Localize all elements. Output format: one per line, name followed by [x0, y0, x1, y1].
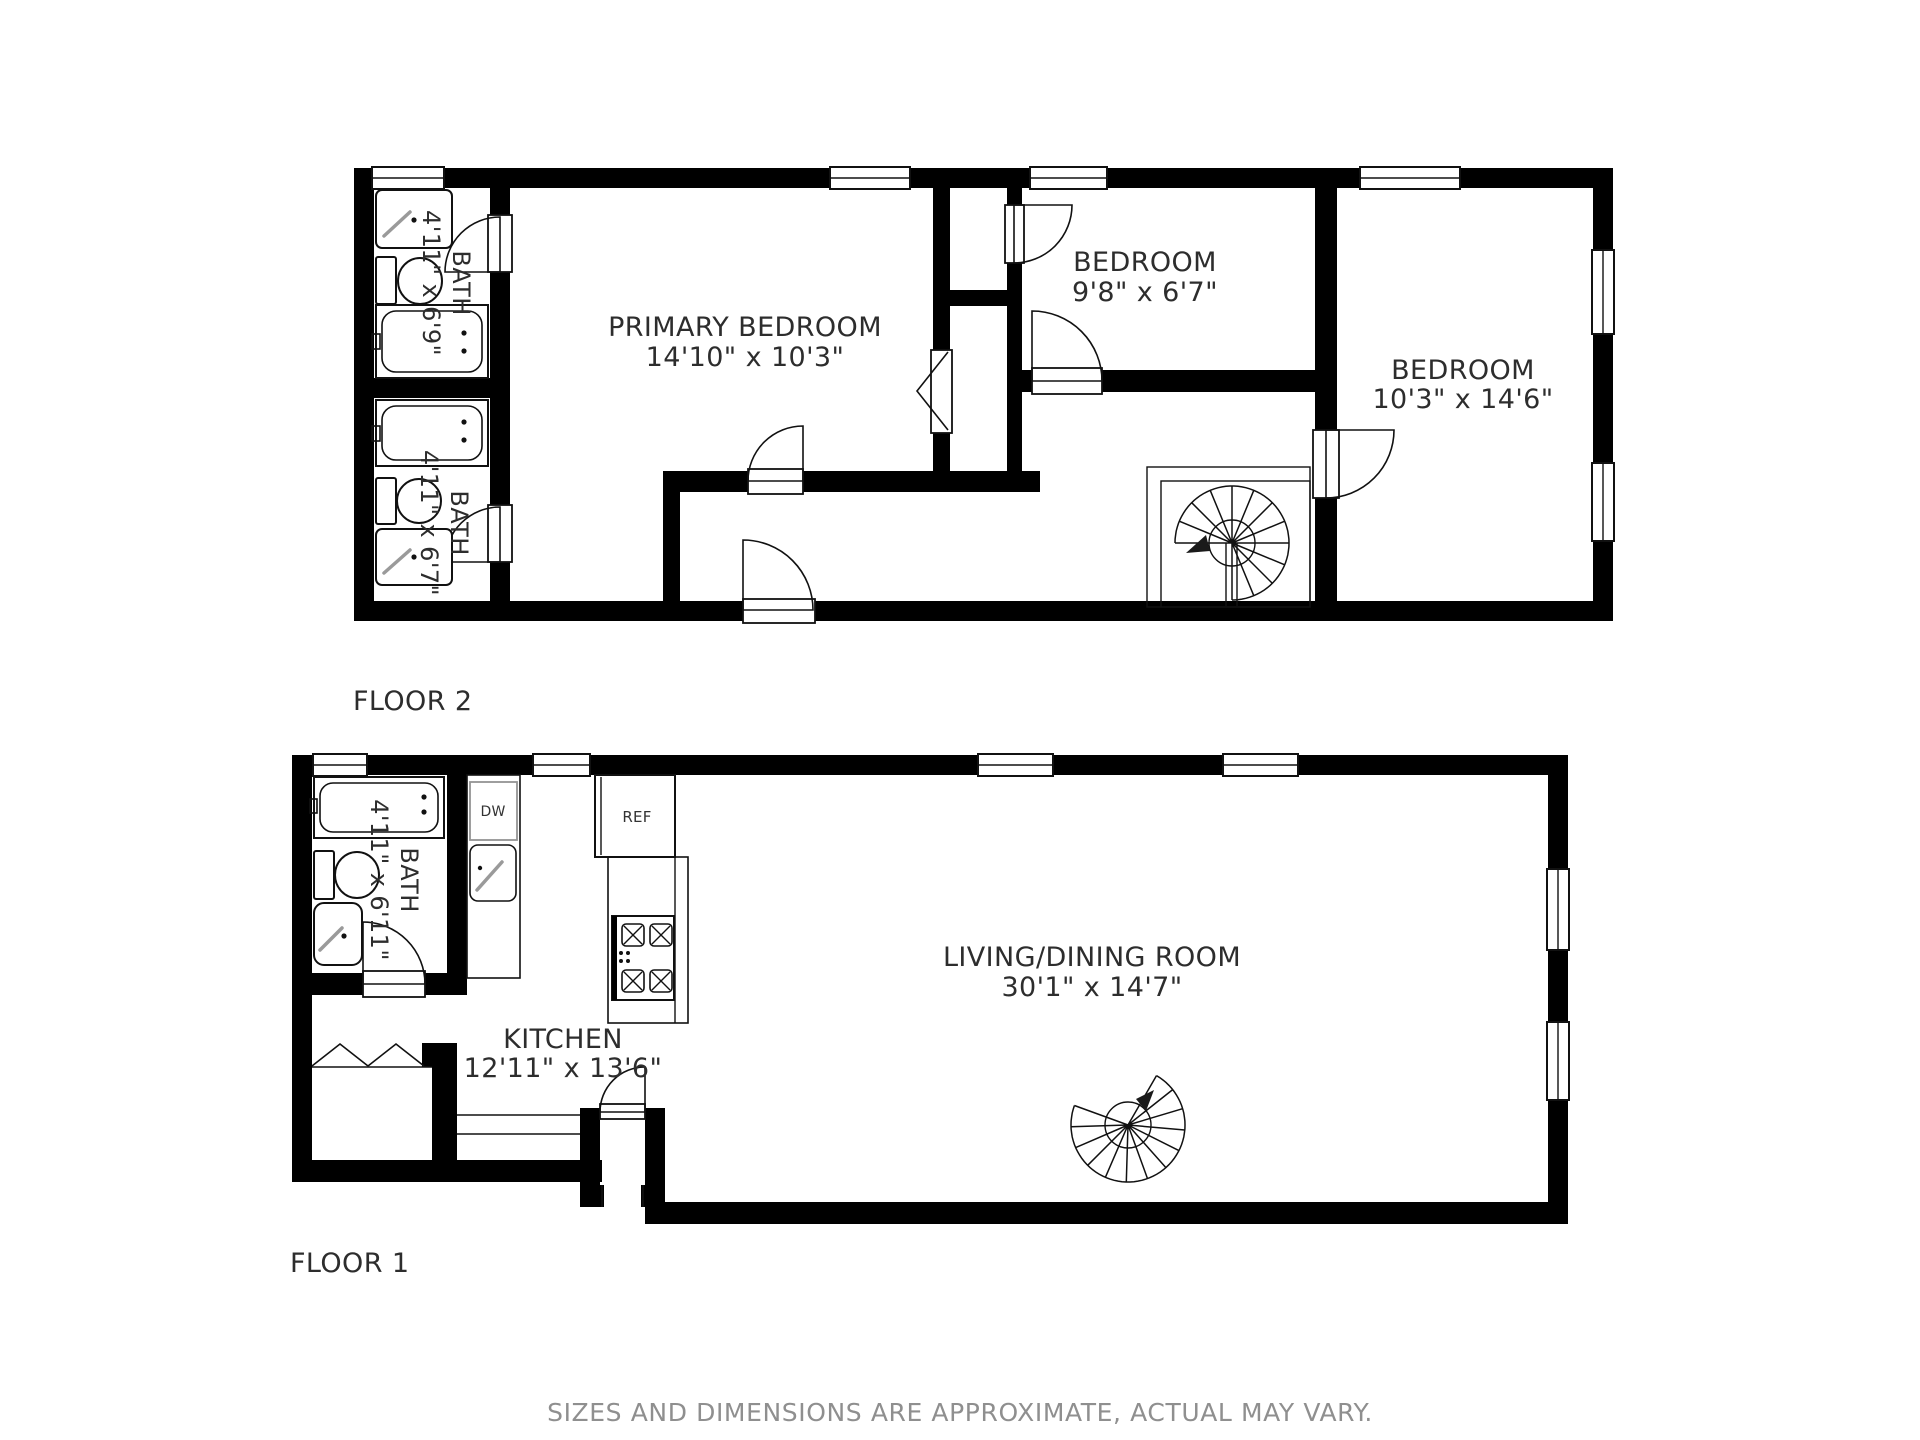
- room-label-bedroom-small: BEDROOM: [1073, 247, 1217, 278]
- floor2-title: FLOOR 2: [353, 686, 472, 717]
- kitchen-sink: [470, 845, 516, 901]
- window: [1592, 250, 1614, 334]
- wall: [422, 1043, 457, 1067]
- window: [1547, 1022, 1569, 1100]
- room-dims-primary-bedroom: 14'10" x 10'3": [646, 342, 845, 373]
- floorplan-drawing: PRIMARY BEDROOM 14'10" x 10'3" BEDROOM 9…: [0, 0, 1920, 1440]
- room-label-kitchen: KITCHEN: [503, 1024, 623, 1055]
- refrigerator-label: REF: [622, 808, 651, 826]
- room-label-living-dining: LIVING/DINING ROOM: [943, 942, 1241, 973]
- wall: [354, 378, 510, 398]
- bath-label-text: BATH: [445, 490, 473, 555]
- wall: [950, 290, 1007, 306]
- window: [1030, 167, 1107, 189]
- closet-bifold-doors: [312, 1044, 432, 1067]
- wall: [447, 755, 467, 995]
- floor2-doors: [445, 205, 1394, 623]
- window: [978, 754, 1053, 776]
- door-swing: [1005, 205, 1072, 263]
- window: [1223, 754, 1298, 776]
- window: [1360, 167, 1460, 189]
- window: [313, 754, 367, 776]
- window: [1592, 463, 1614, 541]
- closet-bifold-door: [917, 350, 952, 433]
- room-dims-living-dining: 30'1" x 14'7": [1001, 972, 1182, 1003]
- refrigerator: REF: [595, 775, 675, 857]
- wall: [292, 755, 1568, 775]
- room-label-bedroom-large: BEDROOM: [1391, 355, 1535, 386]
- sink: [314, 903, 362, 965]
- stove: [612, 916, 674, 1000]
- room-dims-bedroom-small: 9'8" x 6'7": [1072, 277, 1218, 308]
- spiral-staircase: [1071, 1076, 1185, 1182]
- stair-treads: [1175, 486, 1289, 600]
- door-swing: [748, 426, 803, 494]
- dishwasher: DW: [470, 782, 517, 840]
- wall: [354, 601, 1613, 621]
- floorplan-page: PRIMARY BEDROOM 14'10" x 10'3" BEDROOM 9…: [0, 0, 1920, 1440]
- floor1-plan: DW REF: [290, 754, 1569, 1279]
- bath-label-text: BATH: [395, 847, 423, 912]
- stove-edge: [612, 916, 617, 1000]
- kitchen-fixtures: DW REF: [467, 775, 688, 1023]
- floor2-plan: PRIMARY BEDROOM 14'10" x 10'3" BEDROOM 9…: [353, 167, 1614, 717]
- door-swing: [1313, 430, 1394, 498]
- bath-dims-text: 4'11" x 6'7": [415, 450, 443, 596]
- wall: [1315, 168, 1337, 621]
- floor2-labels: PRIMARY BEDROOM 14'10" x 10'3" BEDROOM 9…: [353, 210, 1554, 717]
- room-dims-bedroom-large: 10'3" x 14'6": [1372, 384, 1553, 415]
- room-label-primary-bedroom: PRIMARY BEDROOM: [608, 312, 882, 343]
- wall: [580, 1185, 604, 1207]
- exterior-doorway: [602, 1185, 643, 1207]
- disclaimer-text: SIZES AND DIMENSIONS ARE APPROXIMATE, AC…: [547, 1398, 1373, 1427]
- entry-steps: [457, 1115, 580, 1134]
- door-swing: [1032, 311, 1102, 394]
- wall: [432, 1067, 457, 1182]
- spiral-staircase: [1147, 467, 1310, 607]
- window: [830, 167, 910, 189]
- wall: [663, 471, 1040, 492]
- door-swing: [743, 540, 815, 623]
- wall: [292, 755, 312, 1182]
- stair-direction-arrow: [1186, 535, 1210, 553]
- floor1-title: FLOOR 1: [290, 1248, 409, 1279]
- window: [533, 754, 590, 776]
- dishwasher-label: DW: [480, 804, 505, 820]
- stair-enclosure: [1147, 467, 1310, 607]
- wall: [1548, 755, 1568, 1224]
- wall: [645, 1202, 1568, 1224]
- bath-dims-text: 4'11" x 6'11": [365, 799, 393, 961]
- wall: [663, 471, 680, 621]
- bath-dims-text: 4'11" x 6'9": [417, 210, 445, 356]
- wall: [1593, 168, 1613, 621]
- room-dims-kitchen: 12'11" x 13'6": [464, 1053, 663, 1084]
- stair-treads: [1071, 1076, 1185, 1182]
- window: [372, 167, 444, 189]
- bath-label-text: BATH: [447, 250, 475, 315]
- window: [1547, 869, 1569, 950]
